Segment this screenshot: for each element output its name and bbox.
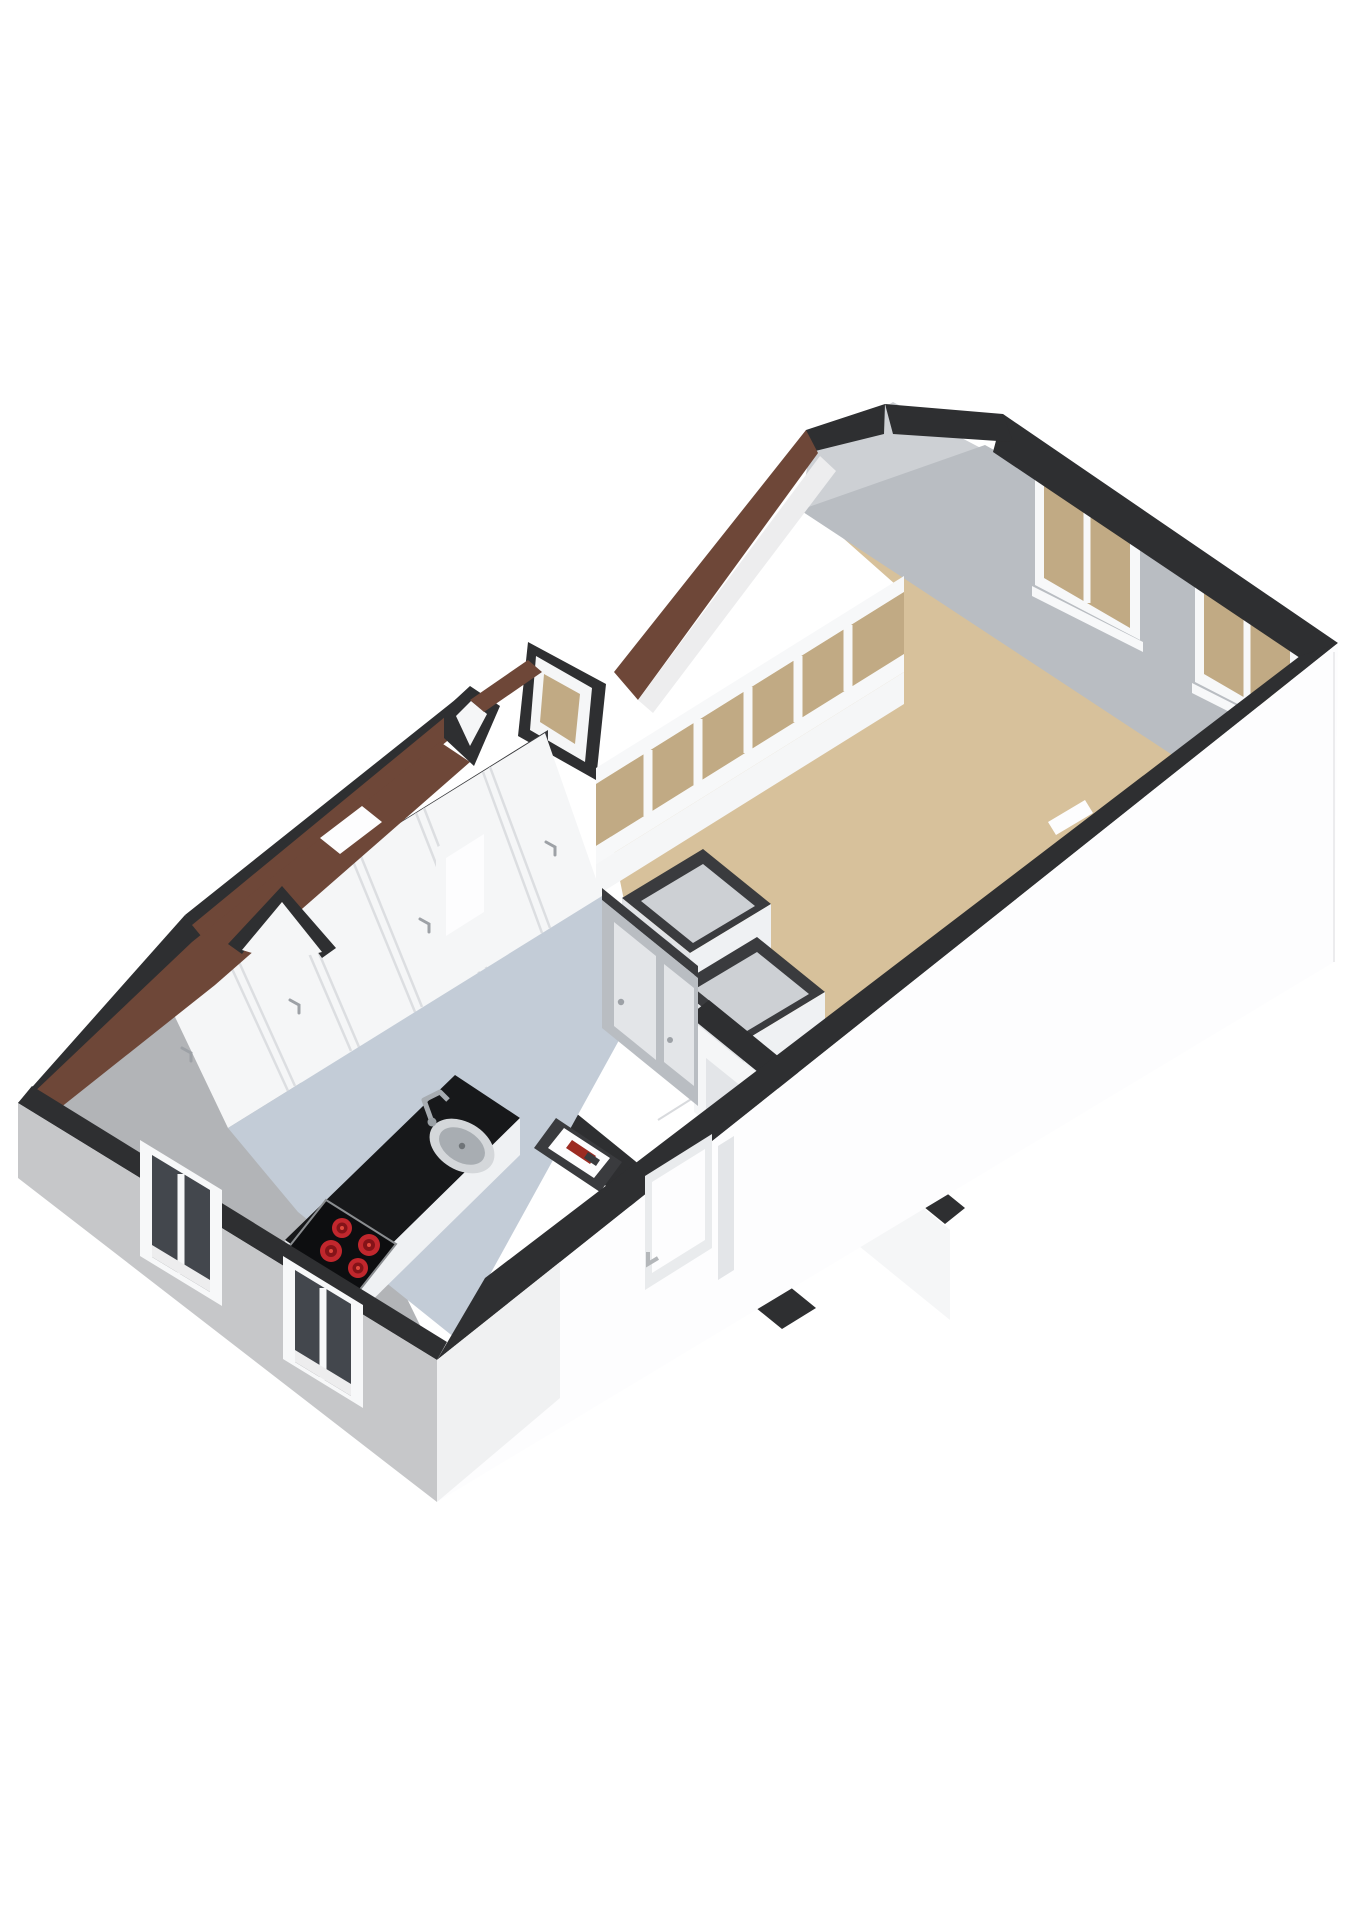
burner-4 [348,1258,368,1278]
floorplan-3d-render [0,0,1358,1920]
burner-1 [332,1218,352,1238]
floorplan-stage [0,0,1358,1920]
burner-3 [320,1240,342,1262]
burner-2 [358,1234,380,1256]
